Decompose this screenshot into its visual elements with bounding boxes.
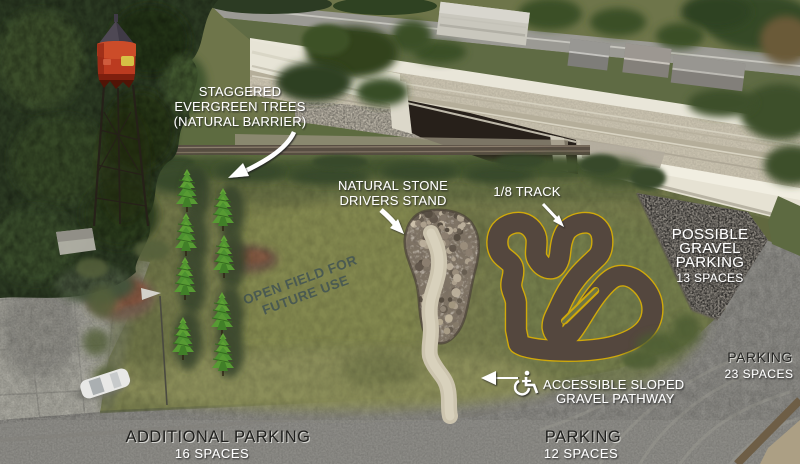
svg-text:DRIVERS STAND: DRIVERS STAND bbox=[339, 193, 446, 208]
svg-text:EVERGREEN TREES: EVERGREEN TREES bbox=[174, 99, 305, 114]
svg-text:13 SPACES: 13 SPACES bbox=[676, 271, 743, 285]
svg-text:12 SPACES: 12 SPACES bbox=[544, 446, 618, 461]
svg-text:PARKING: PARKING bbox=[545, 428, 622, 446]
svg-text:1/8 TRACK: 1/8 TRACK bbox=[493, 184, 560, 199]
svg-text:(NATURAL BARRIER): (NATURAL BARRIER) bbox=[174, 114, 307, 129]
svg-text:23 SPACES: 23 SPACES bbox=[725, 367, 794, 381]
svg-text:16 SPACES: 16 SPACES bbox=[175, 446, 249, 461]
svg-text:STAGGERED: STAGGERED bbox=[199, 84, 281, 99]
svg-text:ADDITIONAL PARKING: ADDITIONAL PARKING bbox=[125, 428, 310, 446]
svg-text:ACCESSIBLE SLOPED: ACCESSIBLE SLOPED bbox=[543, 377, 684, 392]
svg-text:GRAVEL PATHWAY: GRAVEL PATHWAY bbox=[556, 391, 675, 406]
svg-text:NATURAL STONE: NATURAL STONE bbox=[338, 178, 448, 193]
svg-text:PARKING: PARKING bbox=[727, 349, 792, 365]
svg-text:PARKING: PARKING bbox=[676, 254, 745, 271]
